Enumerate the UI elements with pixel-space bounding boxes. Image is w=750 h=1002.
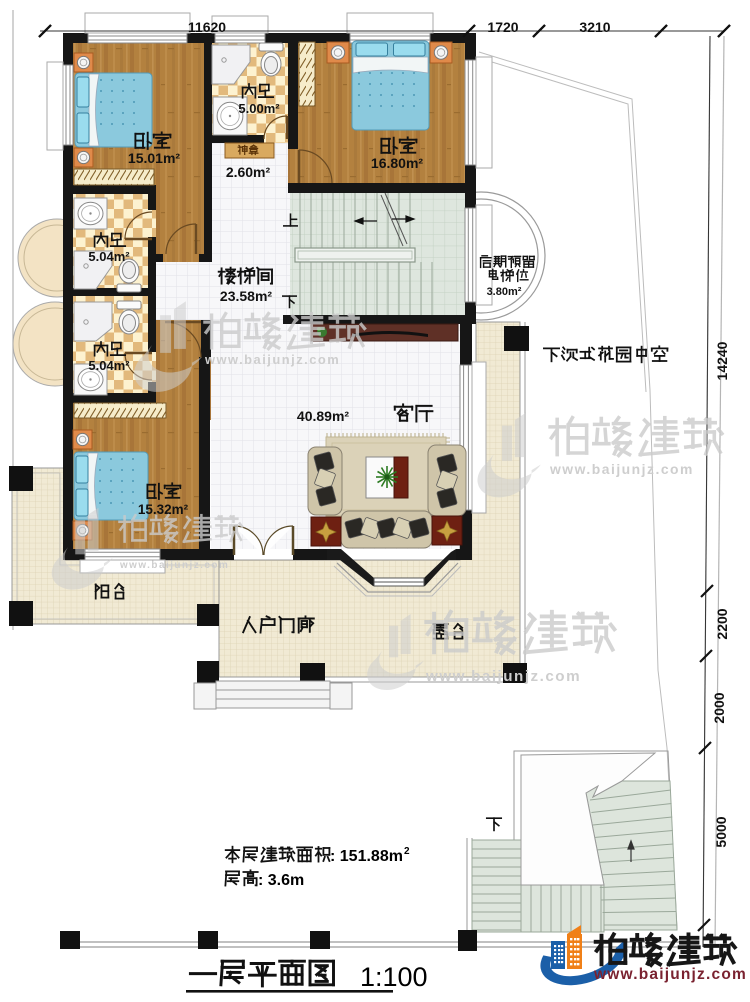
svg-text:www.baijunjz.com: www.baijunjz.com — [204, 352, 340, 367]
svg-text:5.04m²: 5.04m² — [88, 249, 130, 264]
svg-text:2200: 2200 — [714, 608, 730, 639]
svg-text:3.80m²: 3.80m² — [487, 286, 522, 298]
svg-text:1:100: 1:100 — [360, 962, 428, 992]
svg-text:40.89m²: 40.89m² — [297, 408, 349, 424]
svg-text:www.baijunjz.com: www.baijunjz.com — [593, 966, 747, 983]
svg-text:23.58m²: 23.58m² — [220, 288, 272, 304]
svg-text:3210: 3210 — [579, 19, 610, 35]
svg-text:5.04m²: 5.04m² — [88, 358, 130, 373]
svg-text:15.01m²: 15.01m² — [128, 150, 180, 166]
svg-text:1720: 1720 — [487, 19, 518, 35]
svg-text:www.baijunjz.com: www.baijunjz.com — [549, 461, 694, 477]
svg-text:2000: 2000 — [711, 692, 727, 723]
svg-text:15.32m²: 15.32m² — [138, 502, 189, 517]
svg-text:5000: 5000 — [713, 816, 729, 847]
svg-text:14240: 14240 — [714, 341, 730, 380]
svg-text:: 151.88m: : 151.88m — [330, 848, 403, 865]
svg-text:2: 2 — [404, 846, 410, 857]
svg-text:2.60m²: 2.60m² — [226, 164, 271, 180]
svg-text:16.80m²: 16.80m² — [371, 155, 423, 171]
svg-text:5.00m²: 5.00m² — [238, 101, 280, 116]
svg-text:11620: 11620 — [188, 19, 226, 35]
svg-text:: 3.6m: : 3.6m — [258, 872, 304, 889]
svg-text:www.baijunjz.com: www.baijunjz.com — [425, 668, 581, 685]
svg-text:www.baijunjz.com: www.baijunjz.com — [119, 560, 229, 571]
